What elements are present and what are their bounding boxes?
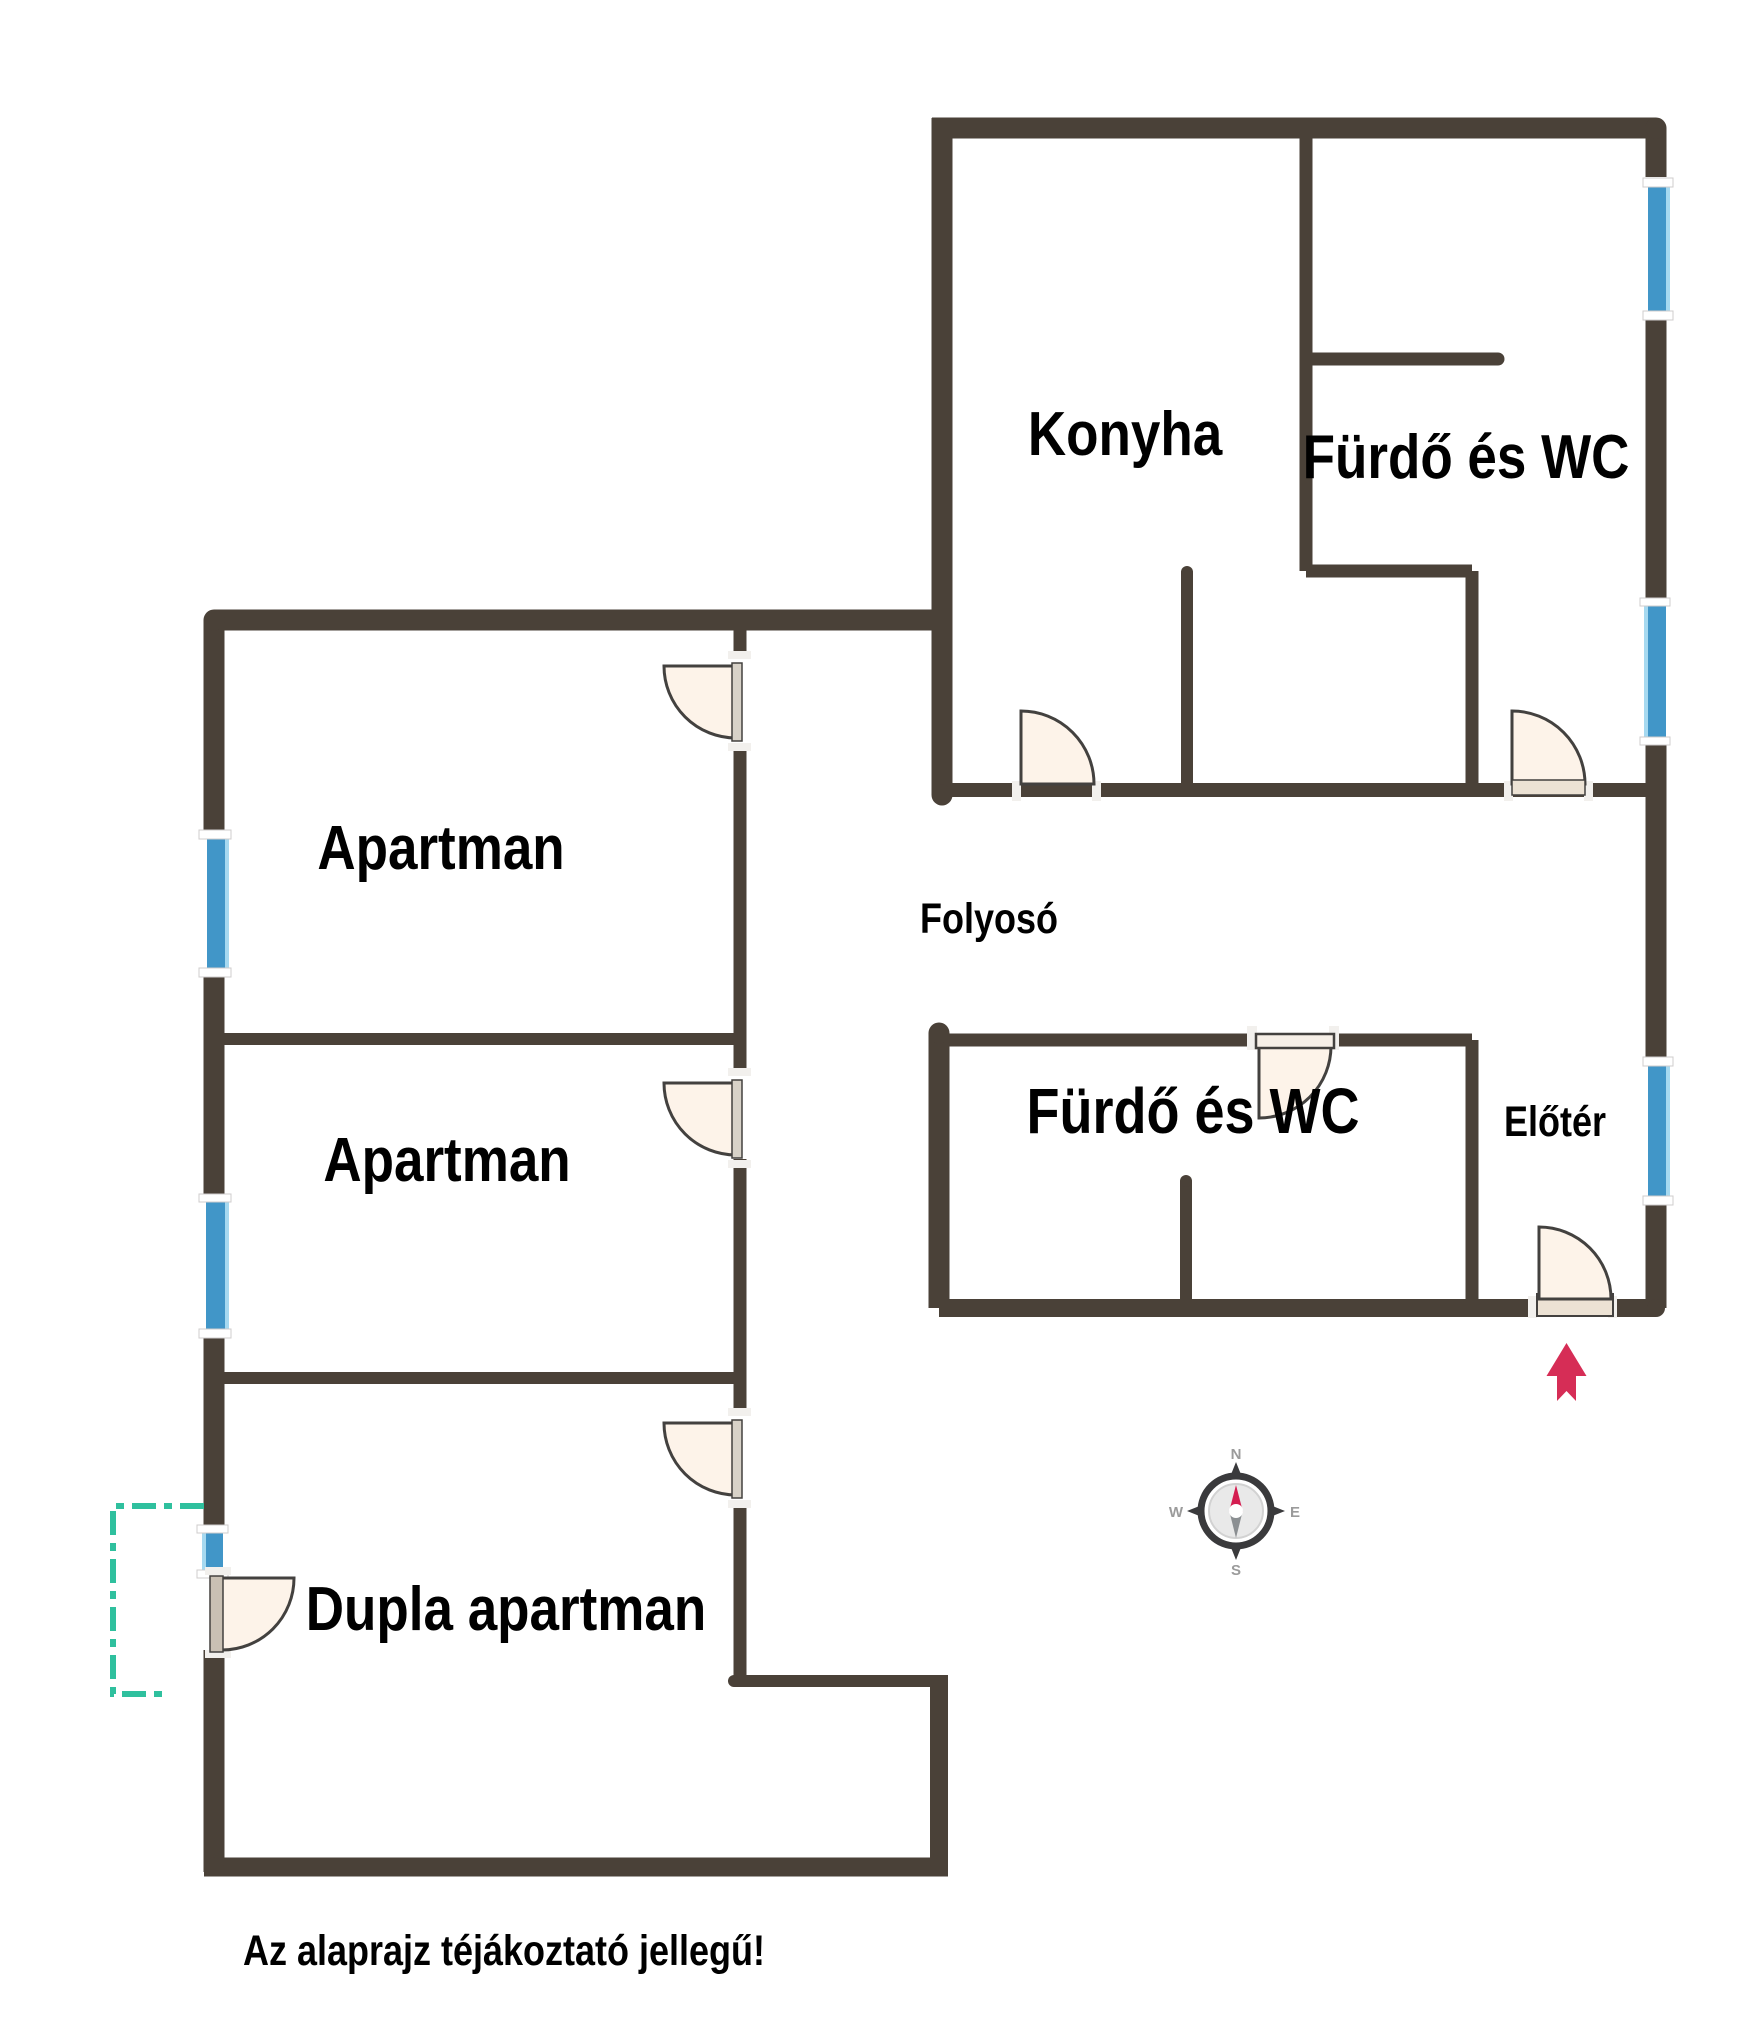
svg-text:N: N (1231, 1446, 1242, 1463)
svg-text:Folyosó: Folyosó (920, 895, 1058, 942)
svg-text:Konyha: Konyha (1028, 400, 1223, 469)
svg-text:S: S (1231, 1562, 1241, 1579)
svg-text:Fürdő és WC: Fürdő és WC (1027, 1076, 1360, 1147)
svg-text:Előtér: Előtér (1504, 1098, 1606, 1145)
svg-text:W: W (1169, 1504, 1184, 1521)
svg-text:Az alaprajz téjákoztató jelleg: Az alaprajz téjákoztató jellegű! (243, 1927, 765, 1974)
svg-text:Fürdő és WC: Fürdő és WC (1303, 423, 1630, 492)
svg-text:Dupla apartman: Dupla apartman (306, 1575, 706, 1644)
svg-text:E: E (1290, 1504, 1300, 1521)
svg-text:Apartman: Apartman (317, 814, 564, 883)
svg-text:Apartman: Apartman (323, 1126, 570, 1195)
